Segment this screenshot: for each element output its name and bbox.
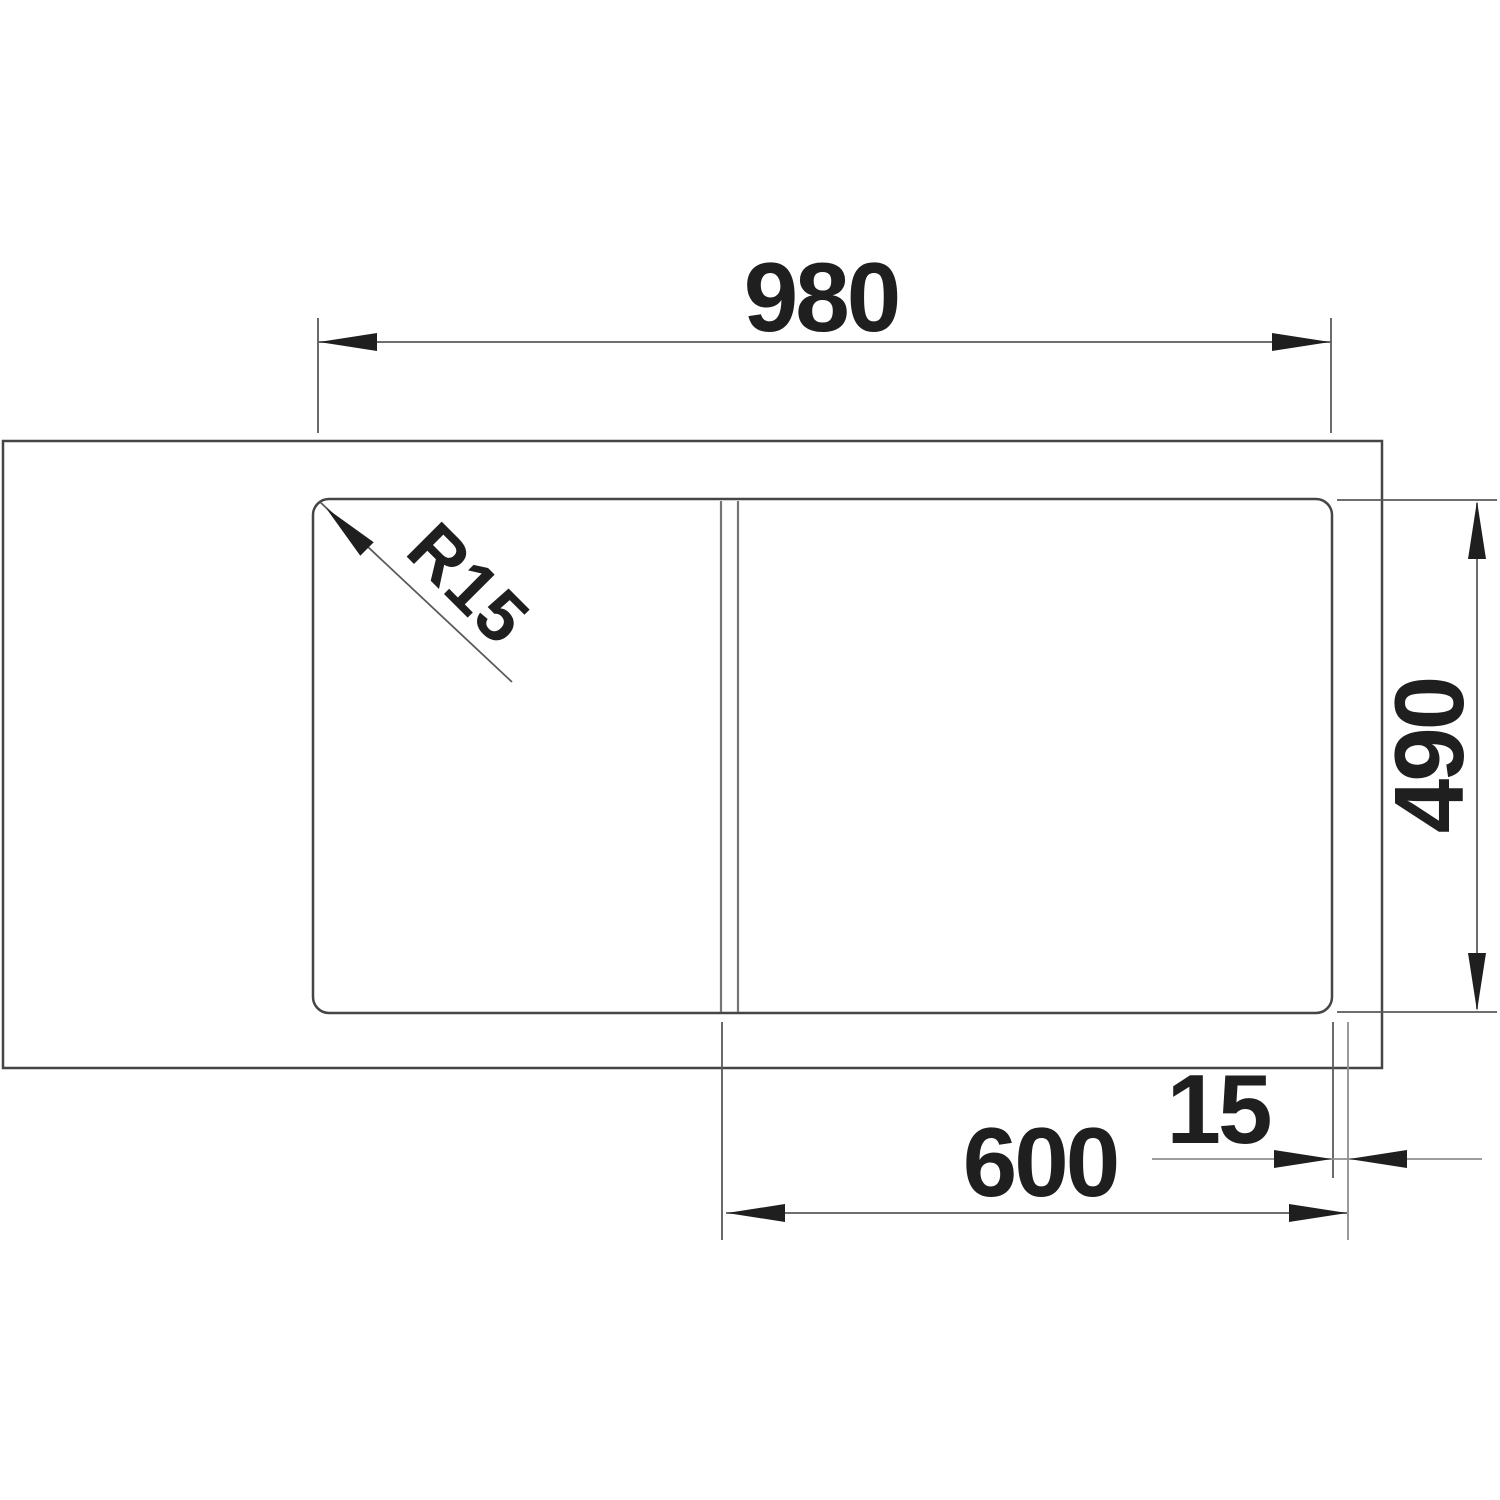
dim-15-label: 15: [1166, 1054, 1270, 1164]
dim-600-label: 600: [963, 1107, 1118, 1217]
technical-drawing-canvas: 980 490 600 15 R15: [0, 0, 1500, 1500]
drawing-background: [0, 0, 1500, 1500]
dim-490-label: 490: [1374, 679, 1484, 834]
sink-dimension-drawing: 980 490 600 15 R15: [0, 0, 1500, 1500]
dim-980-label: 980: [744, 242, 899, 352]
